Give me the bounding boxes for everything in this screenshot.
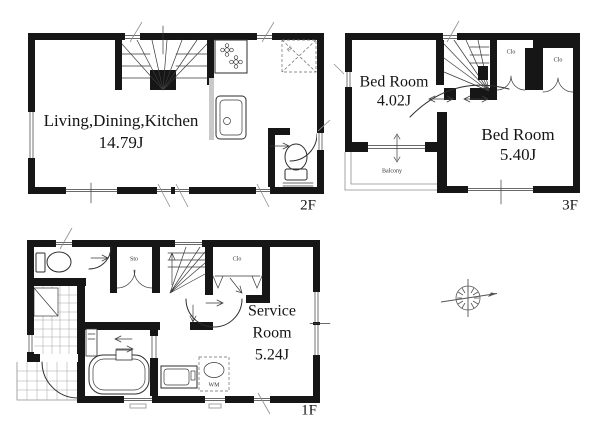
- room-label-ldk: Living,Dining,Kitchen: [44, 111, 199, 130]
- kitchen-2f: [209, 40, 247, 140]
- balcony-3f: Balcony: [345, 152, 437, 190]
- floor-plan-1f: Sto Clo: [17, 228, 330, 418]
- bathroom-1f: [86, 329, 156, 394]
- refrigerator-label: RF: [287, 45, 295, 53]
- stairs-1f: [168, 247, 205, 293]
- floorplan-canvas: RF Living,Dining,Kitchen 14.79J 2F: [0, 0, 600, 430]
- windows-1f: [27, 228, 330, 414]
- stairs-3f: [444, 40, 489, 91]
- room-size-service: 5.24J: [255, 347, 289, 364]
- storage-closet-1f: Sto: [117, 256, 152, 288]
- room-size-bedroom-a: 4.02J: [377, 93, 411, 110]
- toilet-icon-1f: [36, 252, 71, 272]
- washroom-1f: WM: [161, 357, 229, 391]
- walls-3f: [345, 33, 580, 193]
- toilet-icon-2f: [283, 144, 313, 186]
- closet-a-3f: Clo: [497, 49, 525, 90]
- closet-1f: Clo: [213, 256, 262, 293]
- floorplan-image: RF Living,Dining,Kitchen 14.79J 2F: [0, 0, 600, 430]
- floor-label-2f: 2F: [300, 197, 316, 213]
- floor-plan-3f: Clo Clo Balcony Bed Room 4.02J Bed Room …: [334, 21, 580, 213]
- room-label-service-line1: Service: [248, 303, 296, 320]
- genkan-tiles-1f: [34, 286, 77, 354]
- room-label-bedroom-a: Bed Room: [360, 74, 429, 91]
- closet-label-1f: Clo: [233, 256, 242, 262]
- windows-3f: [334, 21, 533, 204]
- toilet-room-1f: [36, 247, 111, 272]
- bathtub-icon: [89, 350, 149, 394]
- room-size-ldk: 14.79J: [99, 133, 144, 152]
- floor-plan-2f: RF Living,Dining,Kitchen 14.79J 2F: [28, 22, 330, 213]
- floor-label-1f: 1F: [301, 402, 317, 418]
- closet-b-3f: Clo: [543, 57, 573, 92]
- vanity-icon: [161, 366, 197, 388]
- toilet-room-2f: [270, 134, 317, 186]
- closet-a-label: Clo: [507, 49, 516, 55]
- floor-label-3f: 3F: [562, 197, 578, 213]
- closet-b-label: Clo: [554, 57, 563, 63]
- compass-icon: [441, 279, 497, 317]
- sink-icon: [216, 96, 246, 139]
- washing-machine-icon: WM: [199, 357, 229, 391]
- room-label-service-line2: Room: [252, 325, 292, 342]
- balcony-label: Balcony: [382, 168, 402, 174]
- room-size-bedroom-b: 5.40J: [500, 145, 537, 164]
- refrigerator-space-2f: RF: [282, 40, 316, 72]
- shower-panel-icon: [86, 329, 97, 356]
- storage-label: Sto: [130, 256, 138, 262]
- room-label-bedroom-b: Bed Room: [481, 125, 554, 144]
- entry-door-1f: [40, 354, 78, 398]
- washing-machine-label: WM: [209, 382, 221, 388]
